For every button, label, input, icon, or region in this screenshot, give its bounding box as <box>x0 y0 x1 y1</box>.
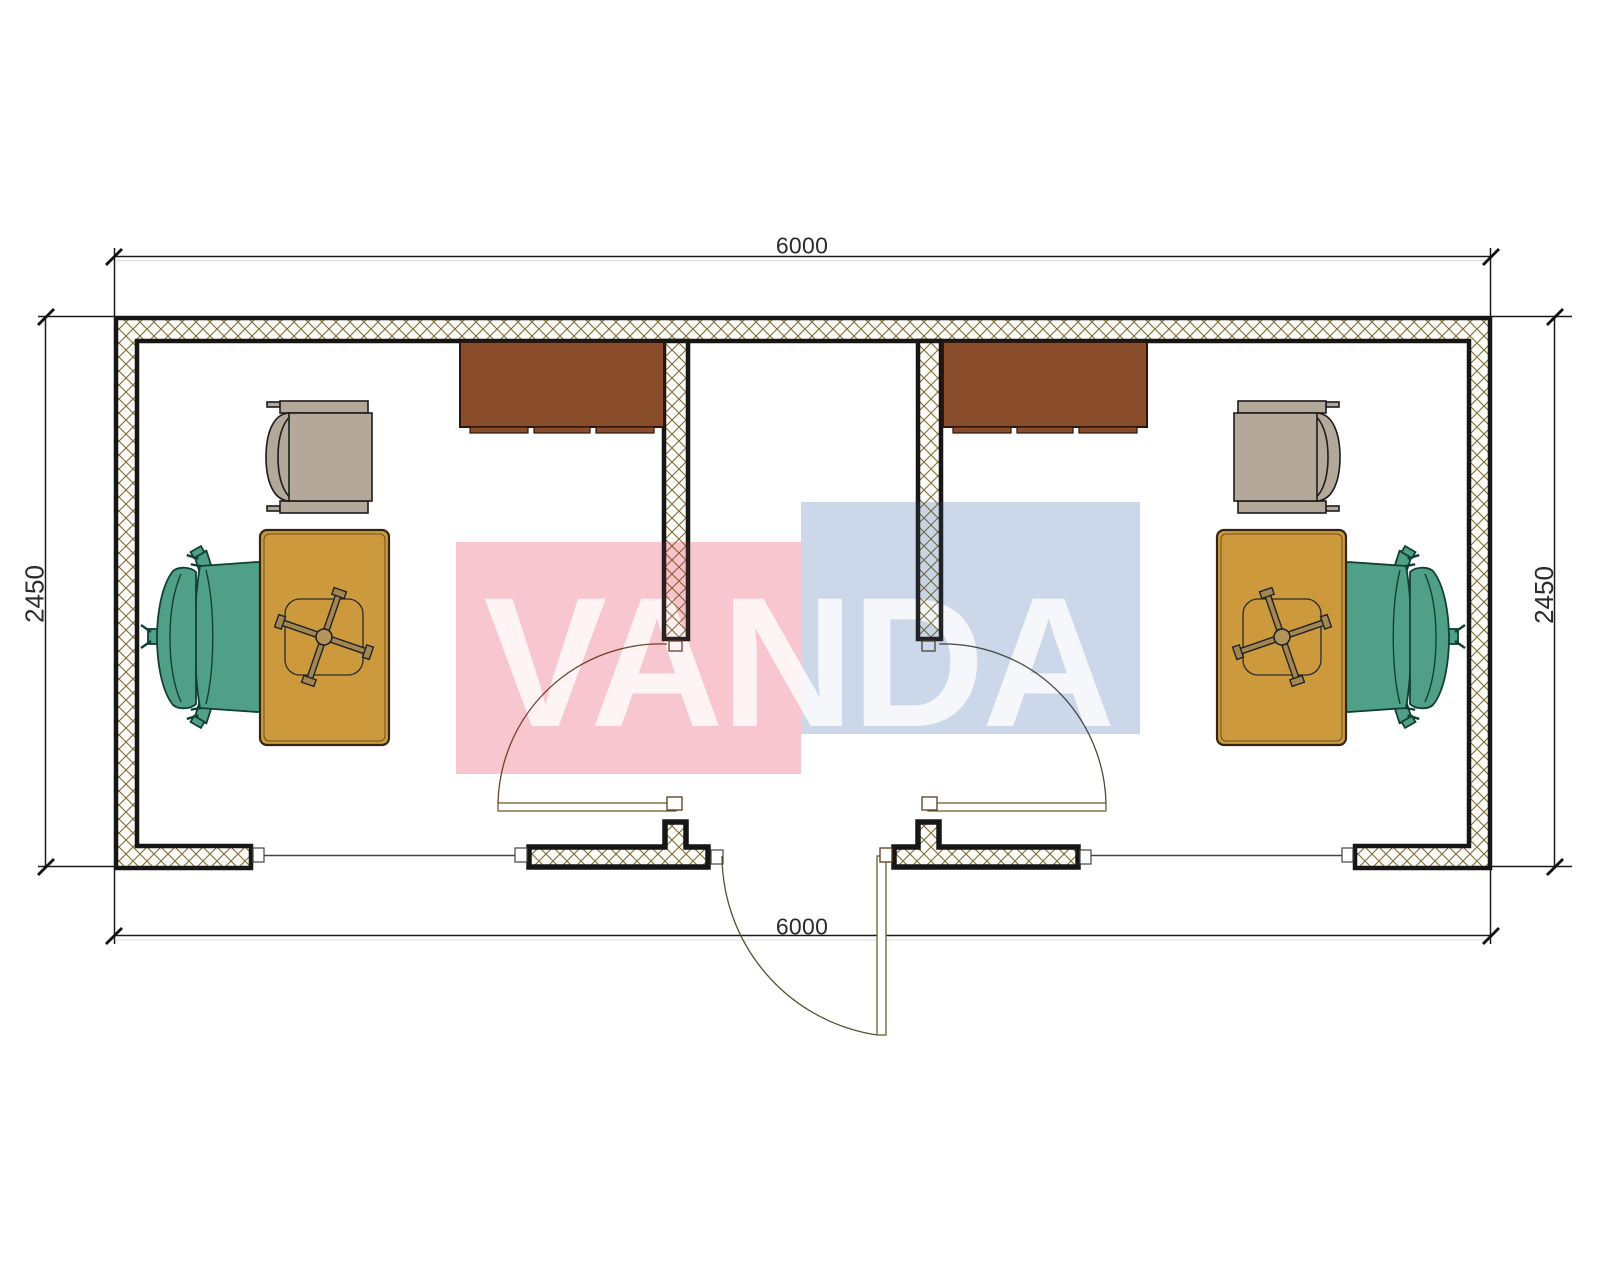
svg-text:6000: 6000 <box>776 914 828 940</box>
svg-text:6000: 6000 <box>776 233 828 259</box>
svg-text:2450: 2450 <box>1529 566 1559 624</box>
svg-text:2450: 2450 <box>20 565 50 623</box>
